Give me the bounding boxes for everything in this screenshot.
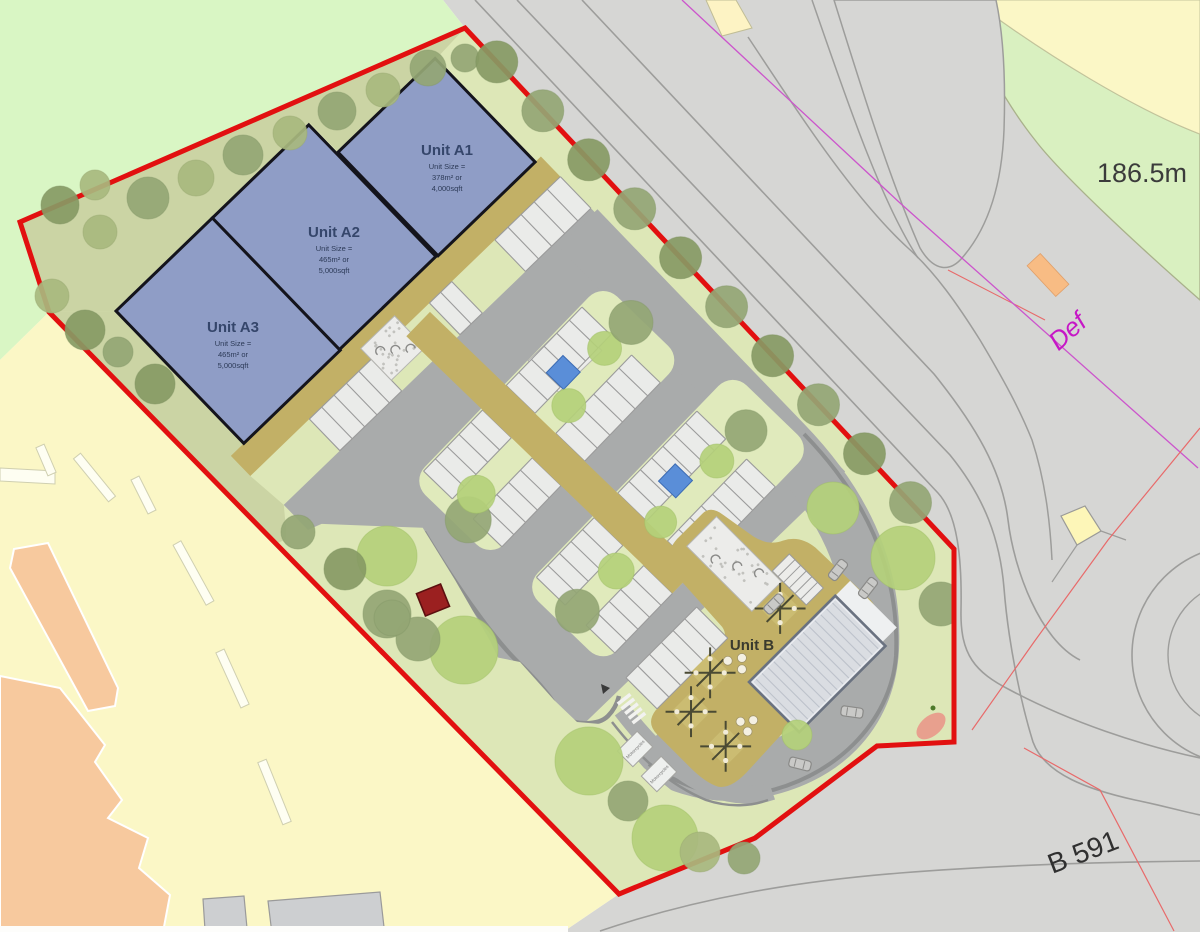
svg-text:378m² or: 378m² or (432, 173, 463, 182)
svg-text:4,000sqft: 4,000sqft (432, 184, 464, 193)
svg-text:Unit A2: Unit A2 (308, 224, 360, 241)
svg-text:465m² or: 465m² or (218, 350, 249, 359)
svg-text:5,000sqft: 5,000sqft (218, 361, 250, 370)
svg-text:Unit A1: Unit A1 (421, 142, 473, 159)
svg-text:Unit Size =: Unit Size = (215, 339, 252, 348)
svg-text:Unit Size =: Unit Size = (429, 162, 466, 171)
svg-text:Unit B: Unit B (730, 637, 774, 654)
svg-text:Unit Size =: Unit Size = (316, 244, 353, 253)
svg-text:5,000sqft: 5,000sqft (319, 266, 351, 275)
svg-text:186.5m: 186.5m (1097, 158, 1187, 188)
svg-text:465m² or: 465m² or (319, 255, 350, 264)
svg-text:Unit A3: Unit A3 (207, 319, 259, 336)
